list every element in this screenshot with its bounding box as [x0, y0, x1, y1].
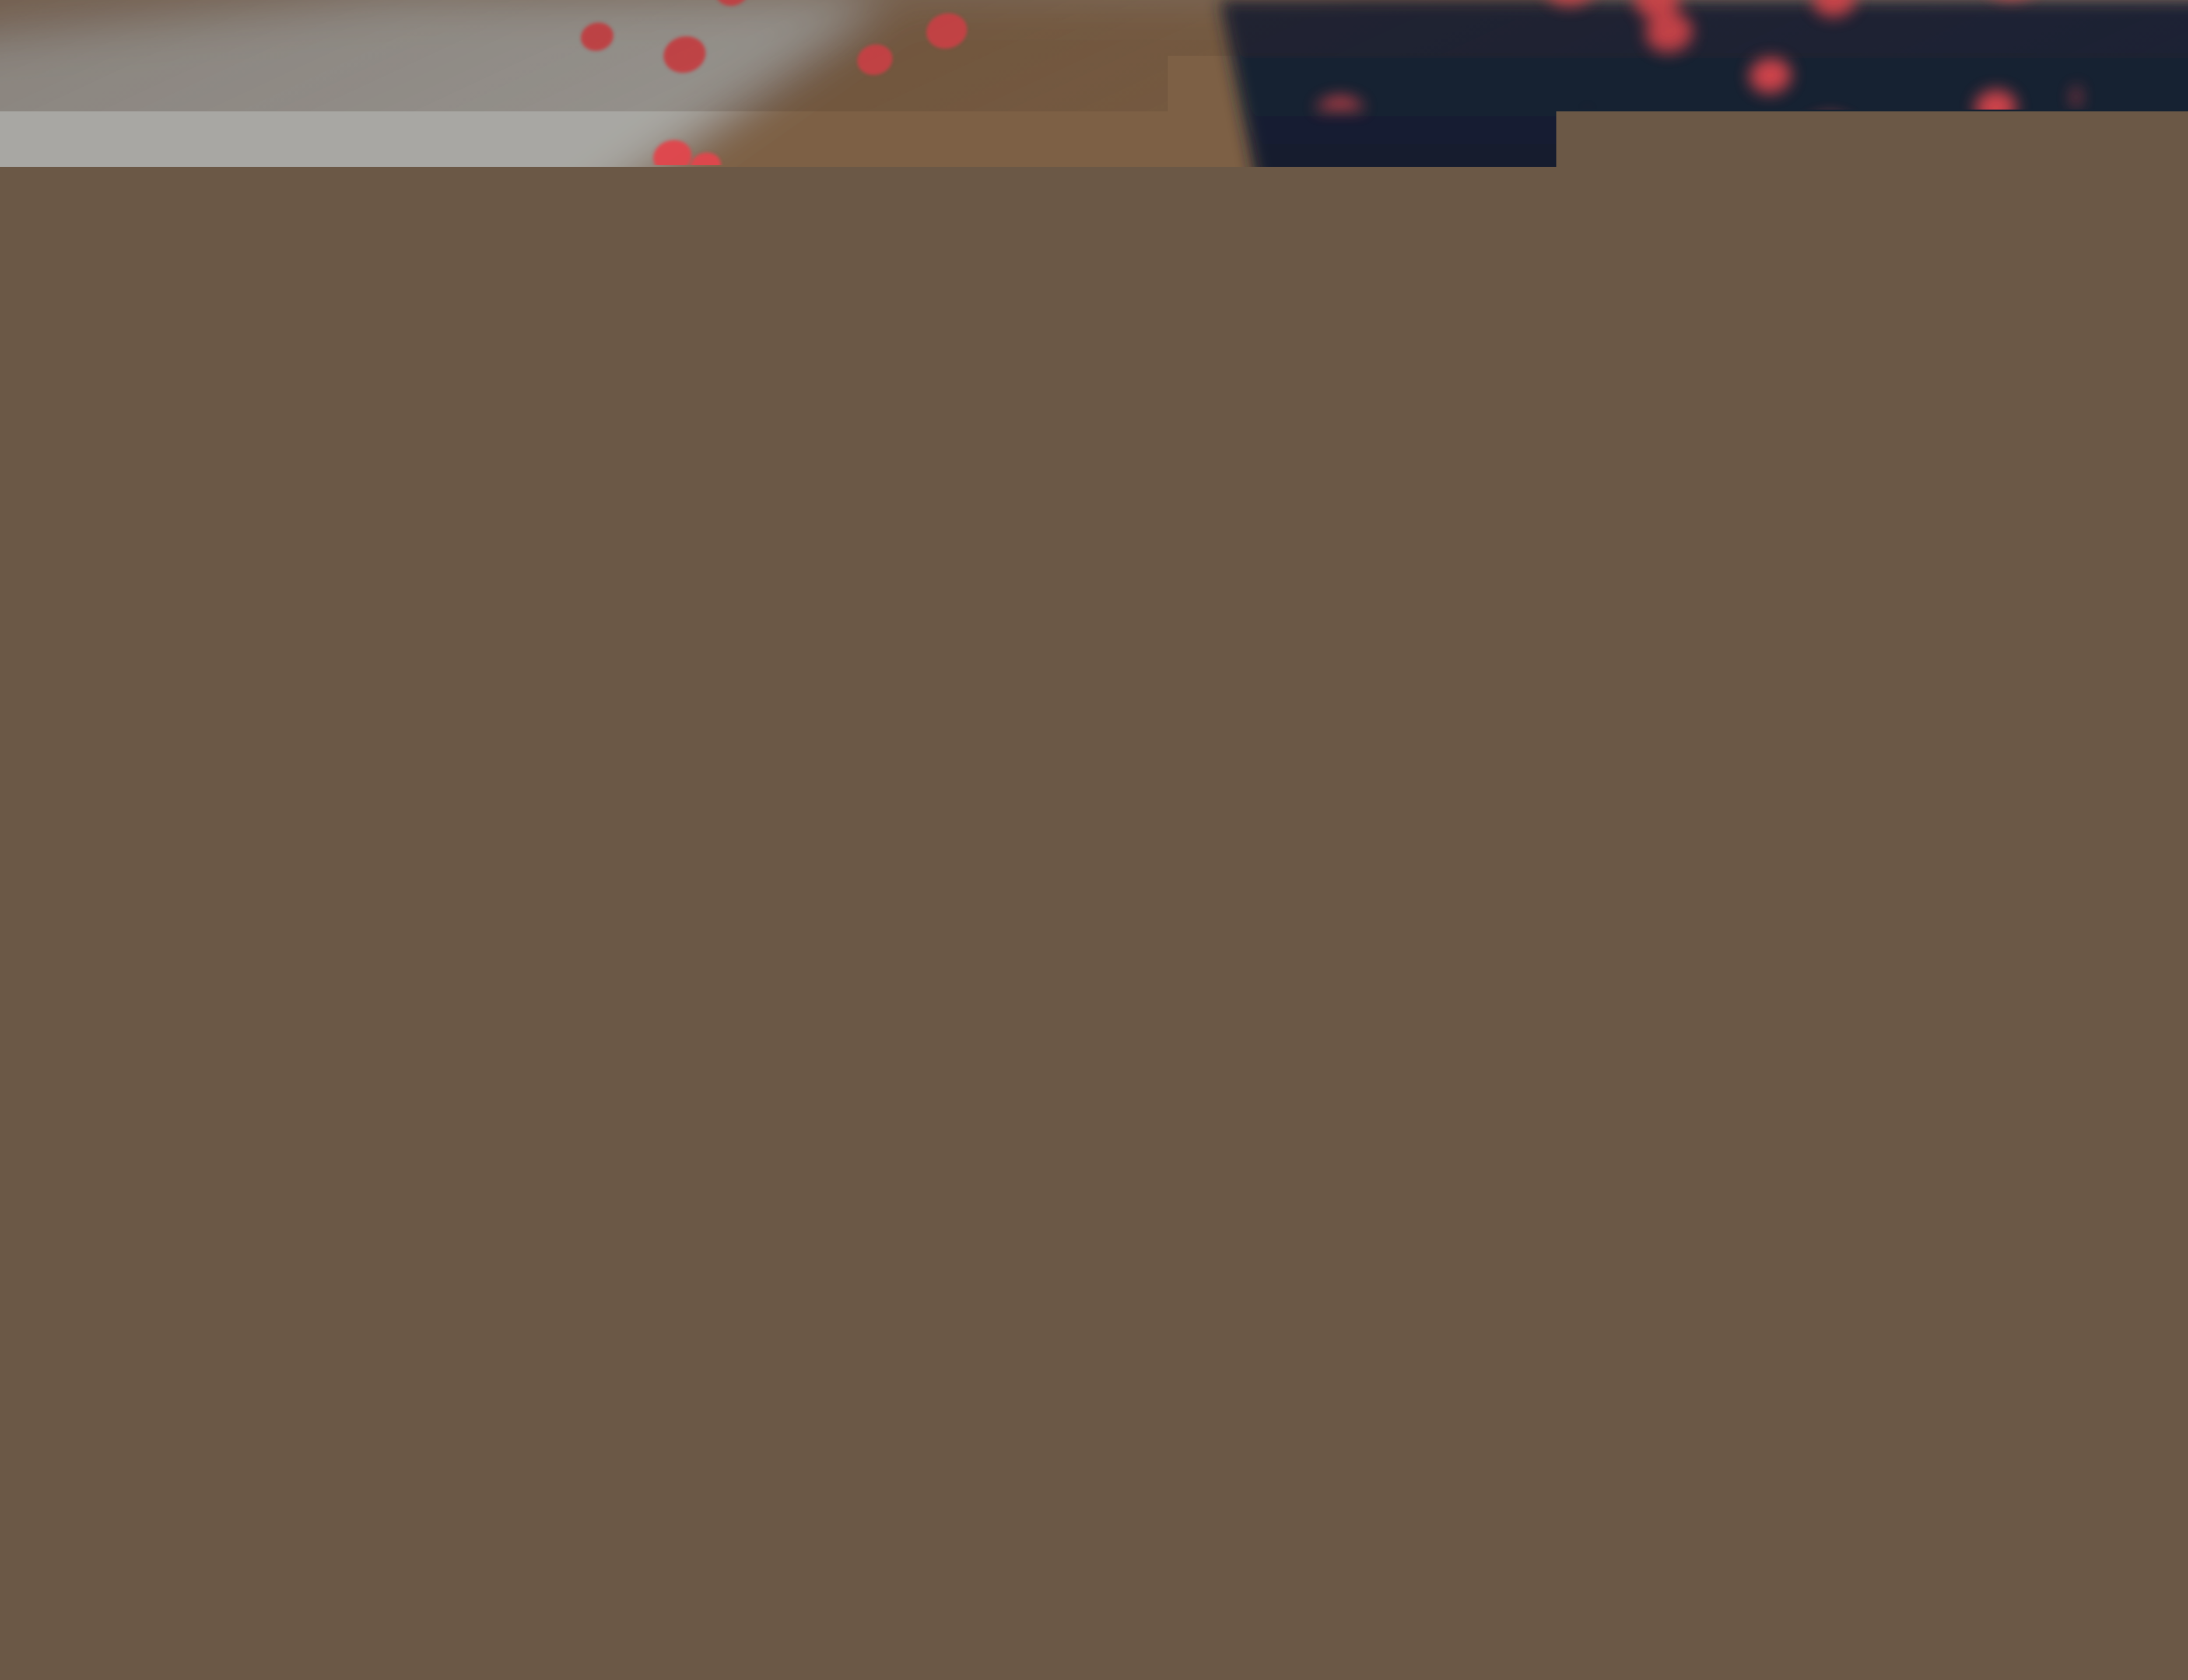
- vignette: [0, 0, 2188, 1680]
- photo-architect-drawing-on-blueprint: 2,20 15 O O: [0, 0, 2188, 1680]
